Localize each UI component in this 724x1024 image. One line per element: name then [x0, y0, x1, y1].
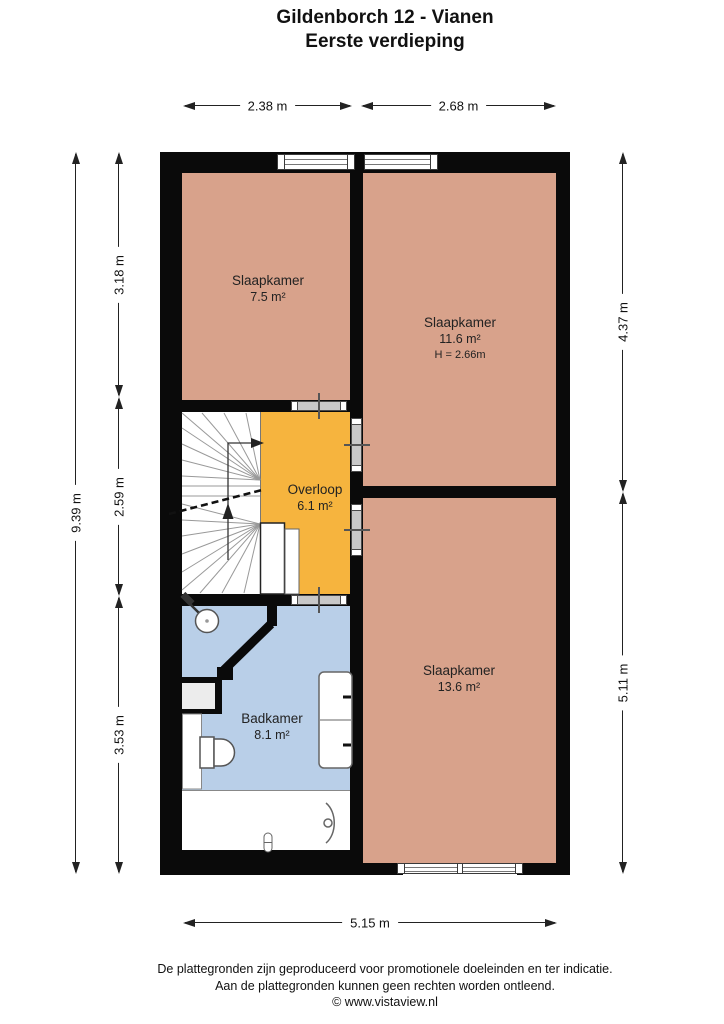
room-name: Slaapkamer — [380, 314, 540, 331]
dimension-label: 4.37 m — [615, 294, 630, 350]
page-title: Gildenborch 12 - Vianen Eerste verdiepin… — [0, 6, 724, 54]
dimension-left-seg2: 2.59 m — [112, 397, 125, 596]
label-bedroom-large: Slaapkamer 13.6 m² — [379, 662, 539, 696]
room-area: 7.5 m² — [188, 289, 348, 306]
arrow-up-icon — [115, 397, 123, 409]
dimension-right-seg2: 5.11 m — [616, 492, 629, 874]
arrow-up-icon — [619, 492, 627, 504]
dimension-left-seg3: 3.53 m — [112, 596, 125, 874]
room-area: 8.1 m² — [192, 727, 352, 744]
room-name: Overloop — [247, 481, 383, 498]
arrow-down-icon — [619, 480, 627, 492]
label-landing: Overloop 6.1 m² — [247, 481, 383, 515]
dimension-left-seg1: 3.18 m — [112, 152, 125, 397]
label-bedroom-small: Slaapkamer 7.5 m² — [188, 272, 348, 306]
title-line-2: Eerste verdieping — [46, 30, 724, 54]
dimension-label: 5.11 m — [615, 656, 630, 711]
dimension-right-seg1: 4.37 m — [616, 152, 629, 492]
label-bedroom-mid: Slaapkamer 11.6 m² H = 2.66m — [380, 314, 540, 362]
room-name: Slaapkamer — [188, 272, 348, 289]
dimension-left-total: 9.39 m — [69, 152, 82, 874]
dimension-top-right: 2.68 m — [361, 99, 556, 112]
arrow-left-icon — [361, 102, 373, 110]
arrow-down-icon — [115, 862, 123, 874]
arrow-up-icon — [619, 152, 627, 164]
arrow-left-icon — [183, 919, 195, 927]
dimension-label: 9.39 m — [68, 485, 83, 541]
arrow-up-icon — [115, 596, 123, 608]
door-stop-icon — [264, 833, 272, 852]
copyright: © www.vistaview.nl — [46, 994, 724, 1011]
arrow-right-icon — [544, 102, 556, 110]
arrow-right-icon — [545, 919, 557, 927]
arrow-left-icon — [183, 102, 195, 110]
arrow-right-icon — [340, 102, 352, 110]
disclaimer-line-1: De plattegronden zijn geproduceerd voor … — [46, 961, 724, 978]
shower-partition — [217, 606, 277, 680]
arrow-down-icon — [619, 862, 627, 874]
dimension-label: 2.68 m — [431, 98, 487, 113]
arrow-up-icon — [72, 152, 80, 164]
arrow-down-icon — [115, 385, 123, 397]
room-name: Badkamer — [192, 710, 352, 727]
dimension-top-left: 2.38 m — [183, 99, 352, 112]
dimension-label: 3.18 m — [111, 247, 126, 303]
dimension-label: 2.59 m — [111, 469, 126, 525]
room-area: 6.1 m² — [247, 498, 383, 515]
walk-arrow-up-icon — [223, 503, 234, 519]
dimension-label: 3.53 m — [111, 707, 126, 763]
room-ceiling-height: H = 2.66m — [380, 348, 540, 362]
landing-cupboards — [261, 523, 300, 594]
arrow-down-icon — [115, 584, 123, 596]
arrow-up-icon — [115, 152, 123, 164]
dimension-label: 2.38 m — [240, 98, 296, 113]
room-name: Slaapkamer — [379, 662, 539, 679]
sink-icon — [324, 803, 334, 843]
shower-head-icon — [180, 592, 218, 633]
wall-duct — [160, 677, 222, 714]
dimension-label: 5.15 m — [342, 915, 398, 930]
room-area: 13.6 m² — [379, 679, 539, 696]
dimension-bottom: 5.15 m — [183, 916, 557, 929]
room-area: 11.6 m² — [380, 331, 540, 348]
walk-arrow-right-icon — [251, 438, 264, 448]
label-bathroom: Badkamer 8.1 m² — [192, 710, 352, 744]
footer-disclaimer: De plattegronden zijn geproduceerd voor … — [0, 961, 724, 1011]
arrow-down-icon — [72, 862, 80, 874]
title-line-1: Gildenborch 12 - Vianen — [46, 6, 724, 30]
disclaimer-line-2: Aan de plattegronden kunnen geen rechten… — [46, 978, 724, 995]
